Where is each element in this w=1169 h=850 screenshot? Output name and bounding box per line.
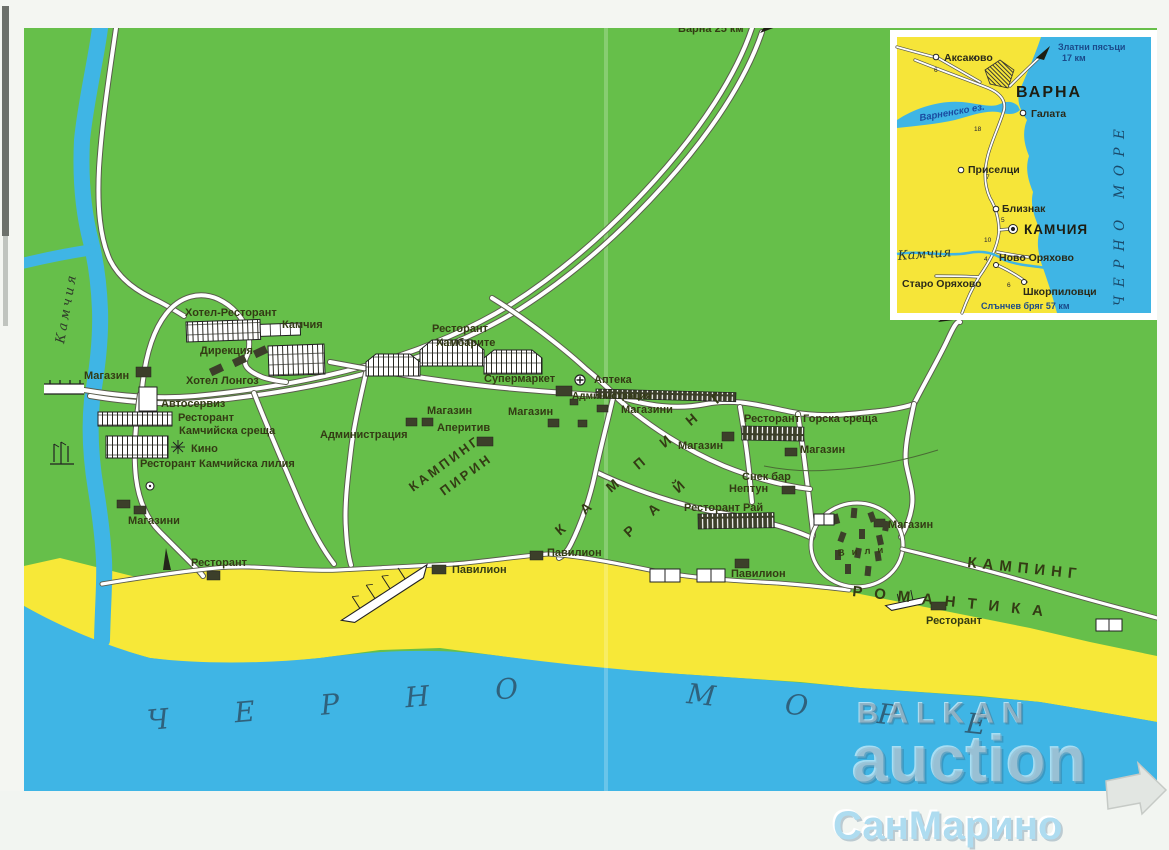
label-magazin-5: Магазин	[800, 444, 845, 456]
inset-label-novo-oryahovo: Ново Оряхово	[999, 252, 1074, 264]
inset-label-zlatni-1: Златни пясъци	[1058, 42, 1125, 52]
inset-label-cherno-more: ЧЕРНО МОРЕ	[1112, 121, 1128, 306]
inset-road-number-2: 18	[974, 126, 982, 133]
label-restorant-beach-right: Ресторант	[926, 615, 983, 627]
inset-road-number-5: 10	[984, 237, 992, 244]
label-restorant-beach-left: Ресторант	[191, 557, 248, 569]
label-restorant-sreshta-2: Камчийска среща	[179, 425, 276, 437]
label-neptun: Нептун	[729, 483, 768, 495]
card-edge-shadow	[2, 6, 9, 236]
label-magazin-4: Магазин	[678, 440, 723, 452]
label-restorant-hambarite-2: Хамбарите	[436, 337, 495, 349]
watermark-auction: auction	[853, 723, 1088, 797]
label-restorant-hambarite-1: Ресторант	[432, 323, 489, 335]
label-magazini-1: Магазини	[128, 515, 180, 527]
pharmacy-cross-icon	[575, 375, 585, 385]
inset-road-number-7: 6	[1007, 282, 1011, 289]
label-magazin-3: Магазин	[508, 406, 553, 418]
avtoserviz-building	[139, 387, 157, 411]
label-hotel-restorant: Хотел-Ресторант	[185, 307, 277, 319]
label-supermarket: Супермаркет	[484, 373, 556, 385]
inset-road-number-4: 5	[1001, 217, 1005, 224]
inset-label-aksakovo: Аксаково	[944, 52, 993, 64]
label-kino: Кино	[191, 443, 218, 455]
label-direkcia: Дирекция	[200, 345, 253, 357]
kino-building	[106, 436, 168, 458]
label-administracia-1: Администрация	[320, 429, 408, 441]
label-hotel-kamchia: Камчия	[282, 319, 323, 331]
inset-label-shkorpilovci: Шкорпиловци	[1023, 286, 1097, 298]
inset-road-number-3: 7	[986, 174, 990, 181]
hotel-longoz-building	[268, 344, 325, 376]
label-magazin-6: Магазин	[888, 519, 933, 531]
inset-label-galata: Галата	[1031, 108, 1066, 120]
inset-label-priselci: Приселци	[968, 164, 1020, 176]
inset-road-number-1: 4	[973, 55, 977, 62]
label-restorant-sreshta-1: Ресторант	[178, 412, 235, 424]
inset-label-zlatni-2: 17 км	[1062, 53, 1086, 63]
inset-road-number-6: 4	[984, 256, 988, 263]
label-restorant-lilia: Ресторант Камчийска лилия	[140, 458, 295, 470]
inset-label-varna: ВАРНА	[1016, 84, 1082, 101]
inset-label-staro-oryahovo: Старо Оряхово	[902, 278, 982, 290]
label-administracia-2: Администрация	[572, 391, 652, 402]
gorska-building	[742, 426, 804, 441]
label-pavilion-2: Павилион	[547, 547, 602, 559]
inset-road-number-0: 6	[934, 67, 938, 74]
label-magazin-1: Магазин	[84, 370, 129, 382]
label-magazini-2: Магазини	[621, 404, 673, 416]
label-avtoserviz: Автосервиз	[161, 398, 226, 410]
label-restorant-rai: Ресторант Рай	[684, 502, 763, 514]
label-hotel-longoz: Хотел Лонгоз	[186, 375, 259, 387]
fountain-icon	[146, 482, 154, 490]
label-aperitiv: Аперитив	[437, 422, 490, 434]
label-snek-bar: Снек бар	[742, 471, 791, 483]
inset-map: Аксаково Златни пясъци 17 км ВАРНА Галат…	[890, 30, 1158, 320]
postcard-map: Варна 25 км Хотел-Ресторант Камчия Дирек…	[0, 0, 1169, 850]
cinema-icon	[171, 440, 185, 454]
inset-label-kamchia-town: КАМЧИЯ	[1024, 222, 1088, 237]
inset-label-bliznak: Близнак	[1002, 203, 1046, 215]
label-restorant-gorska: Ресторант Горска среща	[744, 413, 878, 425]
label-apteka: Аптека	[594, 374, 633, 386]
rai-building	[698, 513, 774, 529]
label-pavilion-3: Павилион	[731, 568, 786, 580]
label-magazin-2: Магазин	[427, 405, 472, 417]
restorant-sreshta-building	[98, 412, 172, 426]
watermark-sanmarino: СанМарино	[833, 804, 1062, 848]
label-pavilion-1: Павилион	[452, 564, 507, 576]
inset-label-slanchev: Слънчев бряг 57 км	[981, 301, 1070, 311]
